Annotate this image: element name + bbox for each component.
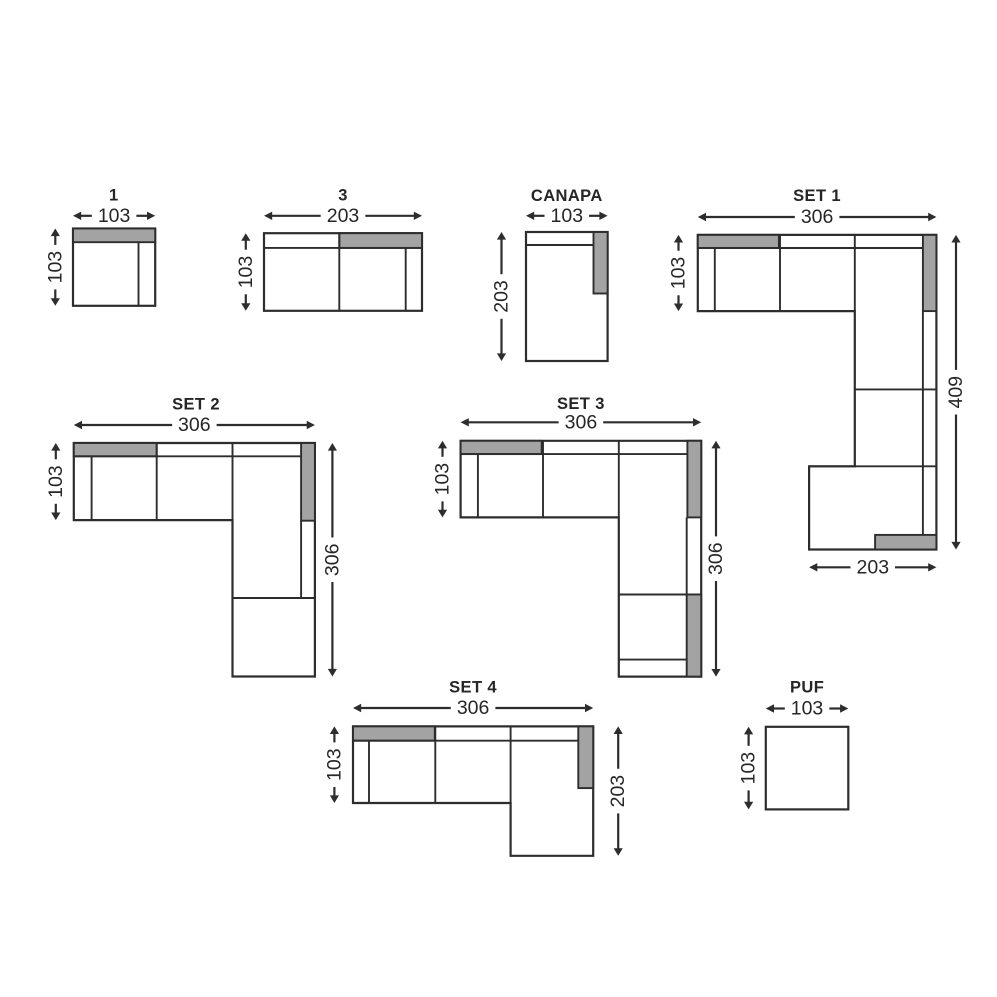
svg-text:103: 103 [45, 465, 67, 498]
svg-text:3: 3 [338, 187, 348, 205]
svg-text:103: 103 [323, 748, 345, 781]
svg-text:1: 1 [109, 187, 119, 205]
svg-text:203: 203 [607, 775, 629, 808]
svg-text:306: 306 [457, 697, 490, 719]
svg-text:306: 306 [565, 411, 598, 433]
svg-text:203: 203 [857, 556, 890, 578]
svg-text:SET 2: SET 2 [172, 396, 220, 414]
svg-text:306: 306 [705, 542, 727, 575]
svg-text:103: 103 [432, 463, 454, 496]
svg-text:103: 103 [551, 205, 584, 227]
svg-text:SET 1: SET 1 [793, 187, 841, 205]
svg-text:306: 306 [801, 206, 834, 228]
svg-text:103: 103 [738, 752, 760, 785]
svg-text:203: 203 [327, 205, 360, 227]
svg-text:103: 103 [98, 205, 131, 227]
svg-text:103: 103 [44, 251, 66, 284]
svg-text:306: 306 [321, 544, 343, 577]
svg-text:CANAPA: CANAPA [531, 187, 603, 205]
svg-text:306: 306 [178, 414, 211, 436]
svg-text:103: 103 [791, 698, 824, 720]
svg-text:SET 3: SET 3 [557, 395, 605, 413]
svg-text:103: 103 [668, 257, 690, 290]
svg-text:103: 103 [235, 256, 257, 289]
svg-text:203: 203 [491, 280, 513, 313]
svg-text:PUF: PUF [790, 679, 824, 697]
svg-text:409: 409 [945, 376, 967, 409]
svg-text:SET 4: SET 4 [449, 678, 497, 696]
